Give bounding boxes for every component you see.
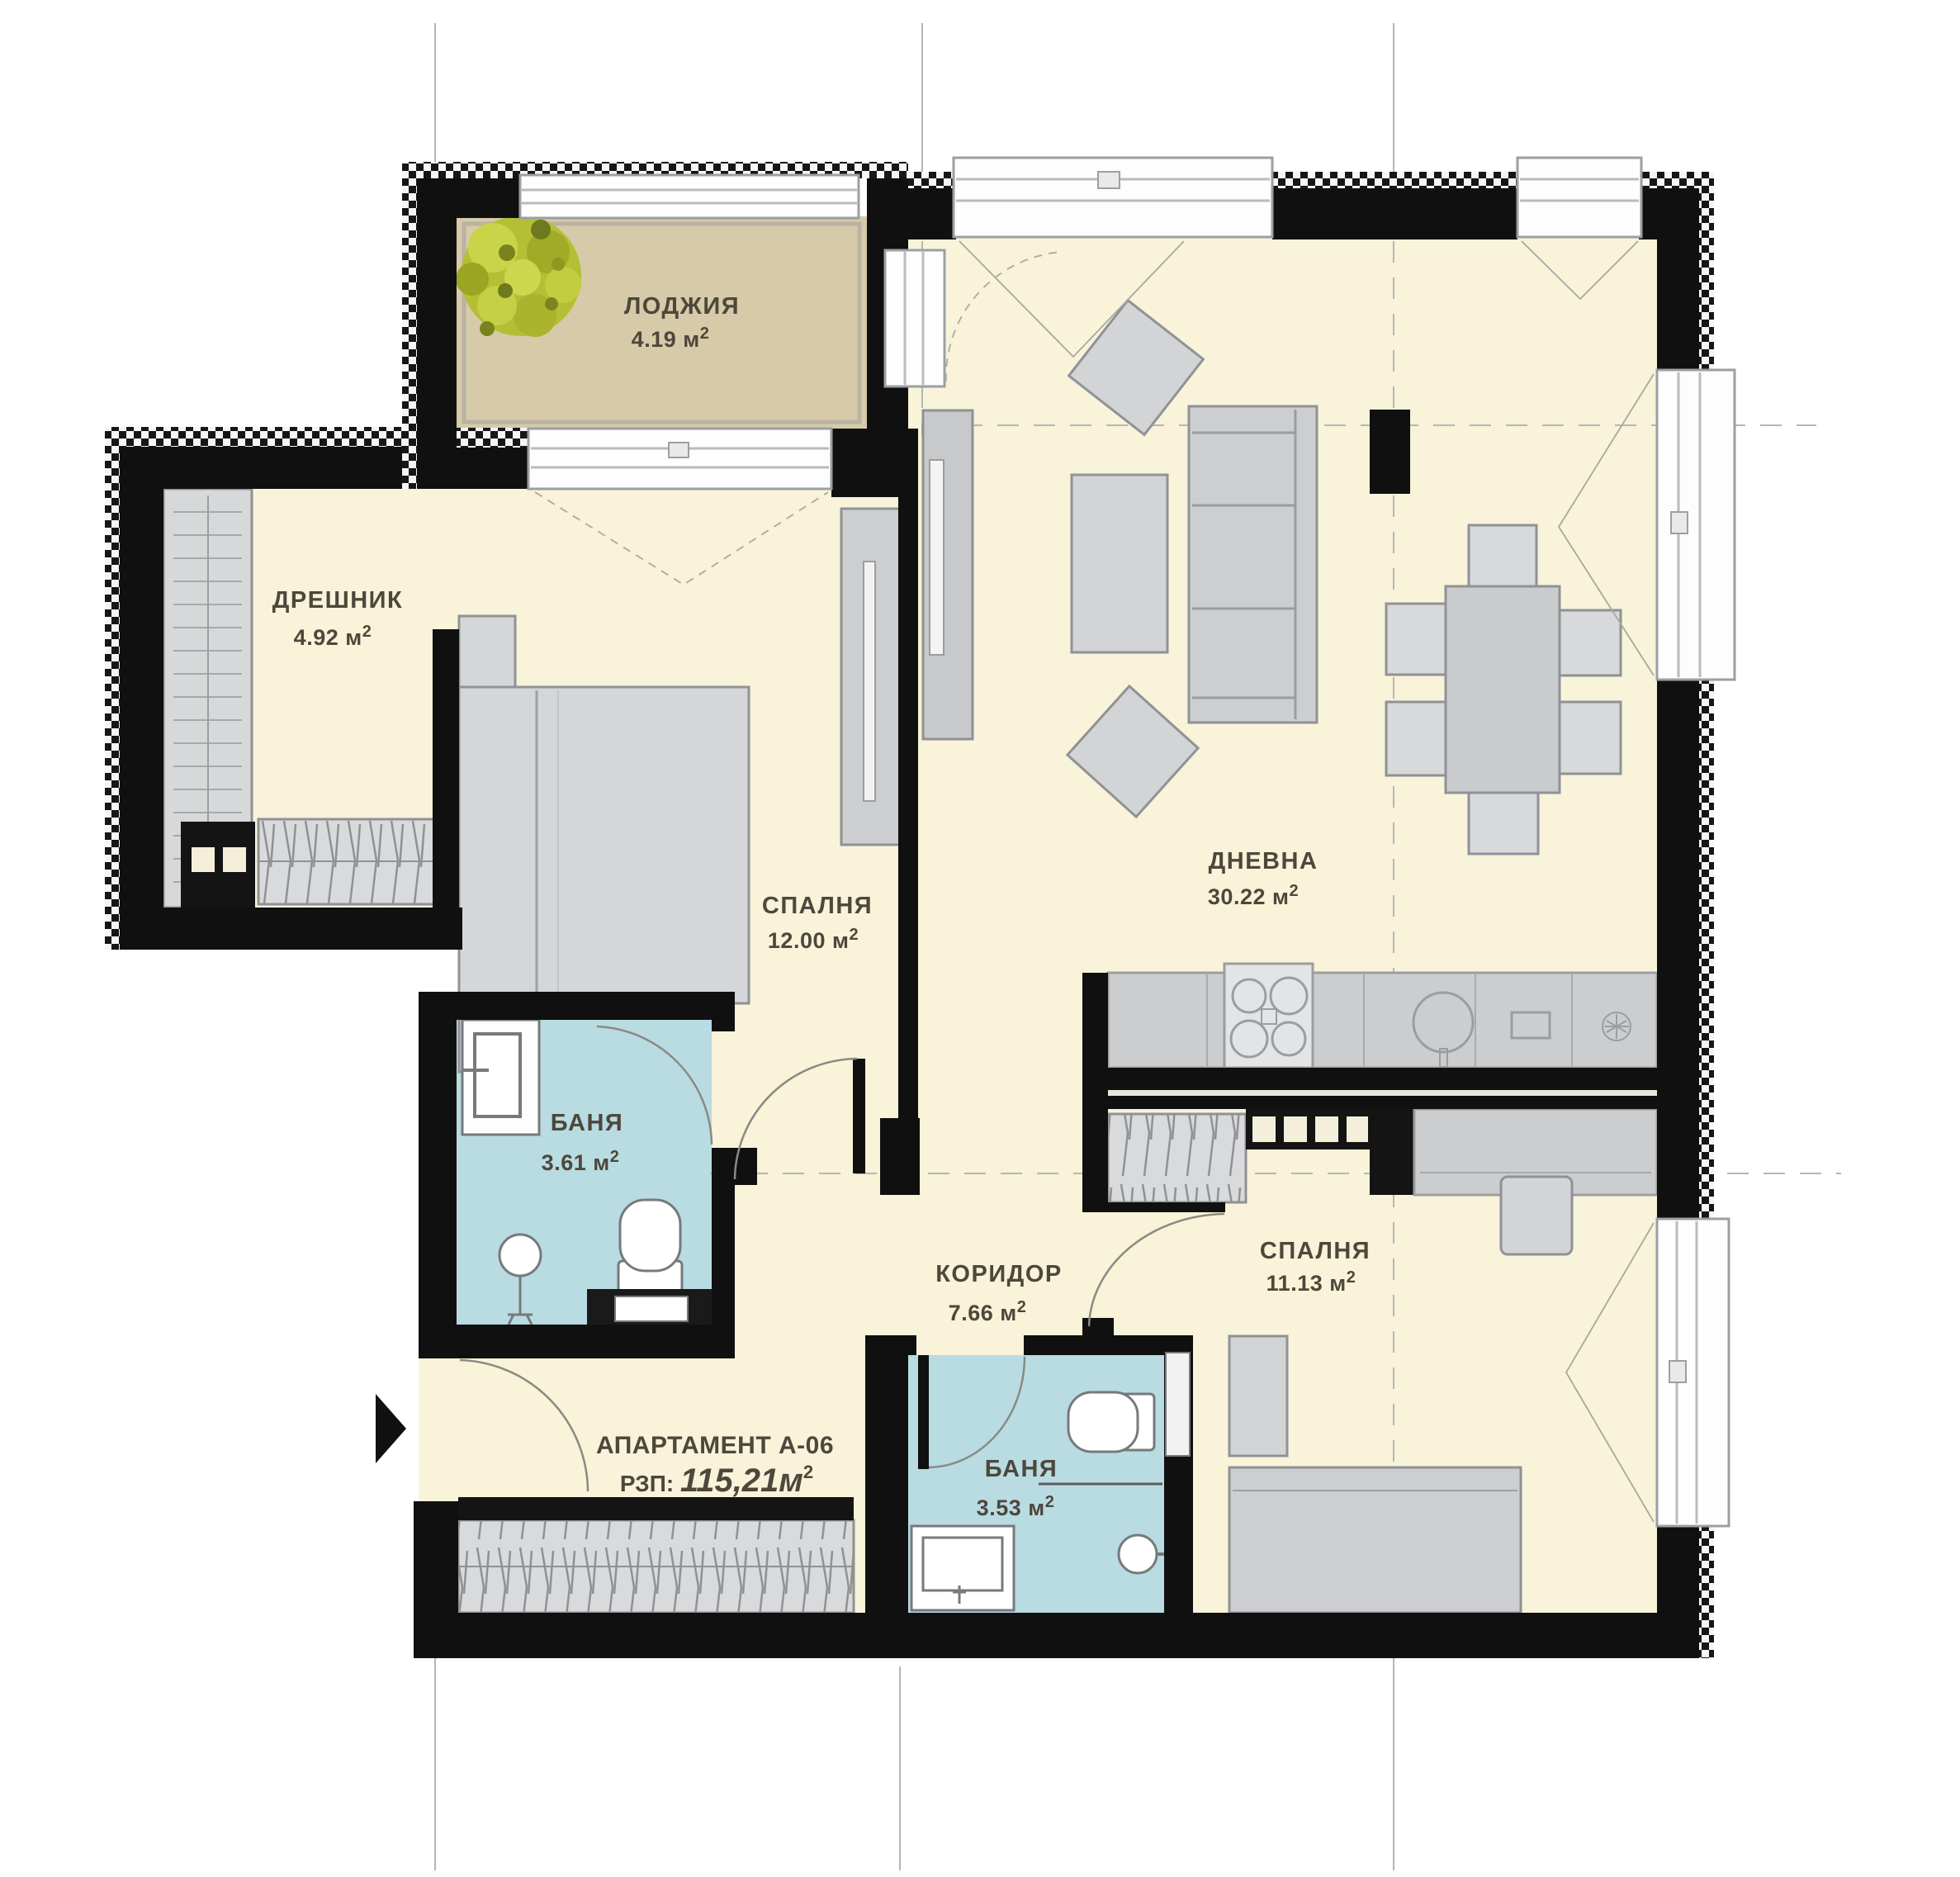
svg-text:СПАЛНЯ: СПАЛНЯ xyxy=(1260,1238,1371,1264)
svg-text:3.53 м2: 3.53 м2 xyxy=(977,1493,1055,1520)
svg-text:11.13 м2: 11.13 м2 xyxy=(1266,1268,1356,1296)
svg-text:СПАЛНЯ: СПАЛНЯ xyxy=(762,893,873,919)
svg-text:4.92 м2: 4.92 м2 xyxy=(294,623,372,650)
svg-text:АПАРТАМЕНТ А-06: АПАРТАМЕНТ А-06 xyxy=(596,1432,834,1459)
svg-text:БАНЯ: БАНЯ xyxy=(985,1456,1058,1482)
svg-text:30.22 м2: 30.22 м2 xyxy=(1208,882,1299,909)
svg-text:БАНЯ: БАНЯ xyxy=(551,1110,623,1136)
svg-text:4.19 м2: 4.19 м2 xyxy=(632,325,710,352)
svg-text:3.61 м2: 3.61 м2 xyxy=(542,1148,620,1175)
svg-text:ЛОДЖИЯ: ЛОДЖИЯ xyxy=(624,293,740,320)
svg-text:12.00 м2: 12.00 м2 xyxy=(768,926,859,953)
svg-text:ДРЕШНИК: ДРЕШНИК xyxy=(272,587,403,614)
svg-text:ДНЕВНА: ДНЕВНА xyxy=(1209,848,1319,875)
svg-text:7.66 м2: 7.66 м2 xyxy=(949,1298,1027,1325)
svg-text:КОРИДОР: КОРИДОР xyxy=(935,1261,1063,1287)
